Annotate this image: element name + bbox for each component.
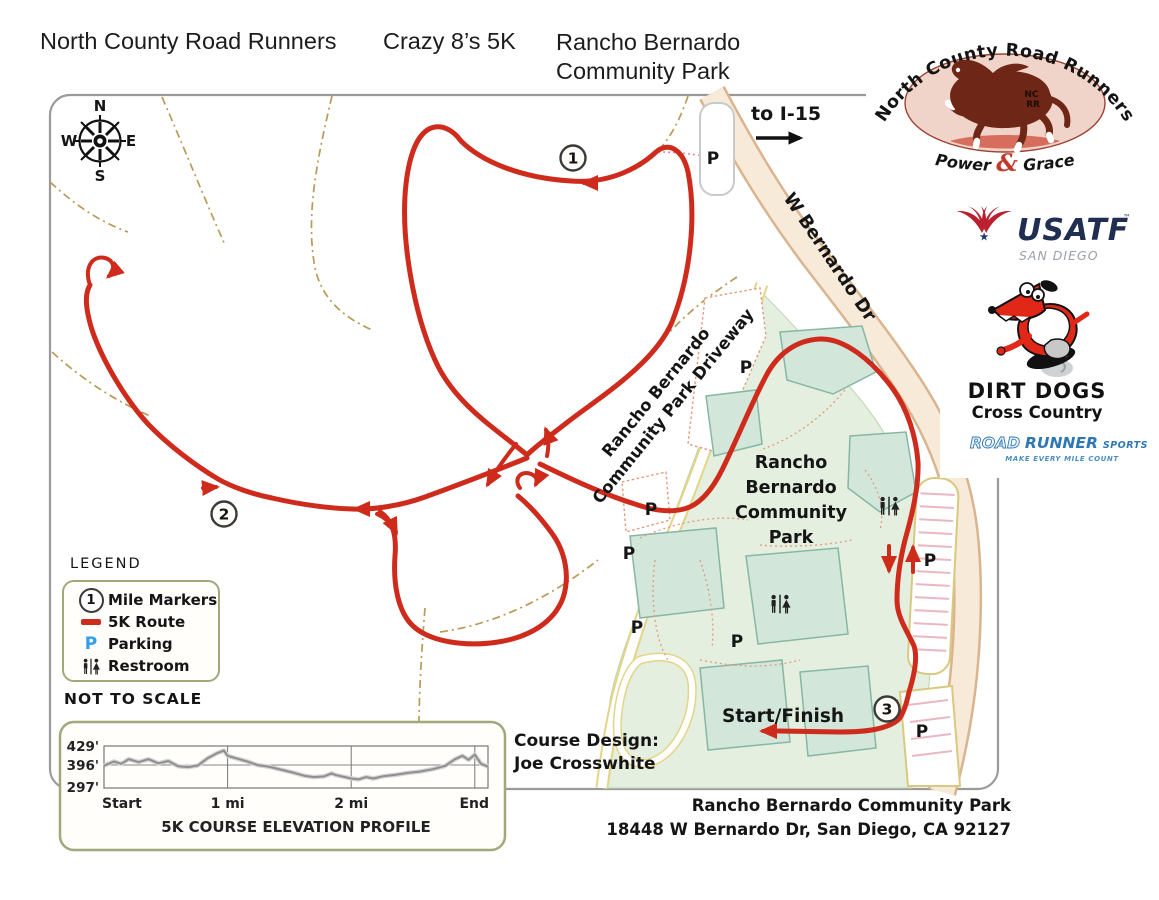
- venue-address: Rancho Bernardo Community Park 18448 W B…: [606, 794, 1011, 842]
- course-design-credit: Course Design: Joe Crosswhite: [514, 730, 659, 776]
- compass-w: W: [61, 132, 78, 150]
- parking-icon: P: [740, 358, 752, 378]
- address-line2: 18448 W Bernardo Dr, San Diego, CA 92127: [606, 818, 1011, 842]
- start-finish-label: Start/Finish: [722, 706, 844, 727]
- legend-row-5k-route: 5K Route: [74, 611, 208, 633]
- parking-icon: P: [631, 618, 643, 638]
- address-line1: Rancho Bernardo Community Park: [606, 794, 1011, 818]
- legend-row-restroom: Restroom: [74, 655, 208, 677]
- sponsor-logos: North County Road Runners: [850, 8, 1159, 478]
- usatf-wordmark: USATF: [1017, 213, 1129, 248]
- parking-icon: P: [85, 634, 97, 654]
- parking-icon: P: [924, 551, 936, 571]
- xtick-start: Start: [102, 796, 142, 812]
- chart-title: 5K COURSE ELEVATION PROFILE: [161, 818, 430, 836]
- parking-icon: P: [916, 722, 928, 742]
- legend-label: Restroom: [108, 657, 189, 675]
- ncrr-monogram: NC RR: [1024, 90, 1041, 110]
- mile-marker-3: 3: [875, 697, 900, 722]
- elevation-profile-chart: 429' 396' 297' Start 1 mi 2 mi End 5K CO…: [58, 720, 507, 852]
- mile-marker-2: 2: [212, 502, 237, 527]
- ncrr-ampersand: &: [996, 148, 1018, 177]
- legend-box: 1 Mile Markers 5K Route P Parking Restro…: [62, 580, 220, 682]
- usatf-region: SAN DIEGO: [1019, 248, 1099, 263]
- rrs-tagline: MAKE EVERY MILE COUNT: [1005, 455, 1119, 463]
- usatf-tm: ™: [1123, 213, 1131, 222]
- mile-marker-2-num: 2: [219, 506, 230, 524]
- legend-title: LEGEND: [70, 556, 142, 572]
- restroom-icon: [81, 658, 101, 675]
- race-map-page: North County Road Runners Crazy 8’s 5K R…: [0, 0, 1159, 900]
- mile-marker-3-num: 3: [882, 701, 893, 719]
- course-designer: Joe Crosswhite: [514, 753, 659, 776]
- park-label-line1: Rancho: [755, 453, 828, 473]
- xtick-1mi: 1 mi: [211, 796, 245, 812]
- park-label-line2: Bernardo: [745, 478, 836, 498]
- compass-e: E: [126, 132, 136, 150]
- mile-marker-1: 1: [561, 146, 586, 171]
- parking-icon: P: [731, 632, 743, 652]
- parking-icon: P: [623, 544, 635, 564]
- mile-marker-1-num: 1: [568, 150, 579, 168]
- park-label-line4: Park: [769, 528, 814, 548]
- dirt-dogs-subtitle: Cross Country: [972, 403, 1103, 422]
- xtick-2mi: 2 mi: [334, 796, 368, 812]
- legend-label: Mile Markers: [108, 591, 217, 609]
- ncrr-monogram-line2: RR: [1026, 100, 1040, 110]
- rrs-runner: RUNNER: [1025, 434, 1098, 452]
- parking-icon: P: [645, 500, 657, 520]
- legend-row-parking: P Parking: [74, 633, 208, 655]
- rrs-road: ROAD: [970, 434, 1020, 452]
- legend-label: Parking: [108, 635, 173, 653]
- route-color-icon: [81, 619, 101, 625]
- to-i15-label: to I-15: [751, 103, 821, 125]
- ytick-396: 396': [67, 758, 99, 774]
- ncrr-monogram-line1: NC: [1024, 90, 1039, 100]
- mile-marker-sample-icon: 1: [79, 588, 104, 613]
- legend-row-mile-markers: 1 Mile Markers: [74, 589, 208, 611]
- xtick-end: End: [459, 796, 489, 812]
- legend-label: 5K Route: [108, 613, 185, 631]
- compass-s: S: [95, 167, 106, 185]
- course-design-label: Course Design:: [514, 730, 659, 753]
- svg-text:★: ★: [979, 229, 989, 243]
- compass-n: N: [94, 97, 107, 115]
- rrs-sports: SPORTS: [1103, 440, 1148, 451]
- not-to-scale-note: NOT TO SCALE: [64, 690, 202, 708]
- ytick-297: 297': [67, 780, 99, 796]
- park-label-line3: Community: [735, 503, 848, 523]
- dirt-dogs-wordmark: DIRT DOGS: [968, 379, 1107, 403]
- ytick-429: 429': [67, 739, 99, 755]
- parking-icon: P: [707, 149, 719, 169]
